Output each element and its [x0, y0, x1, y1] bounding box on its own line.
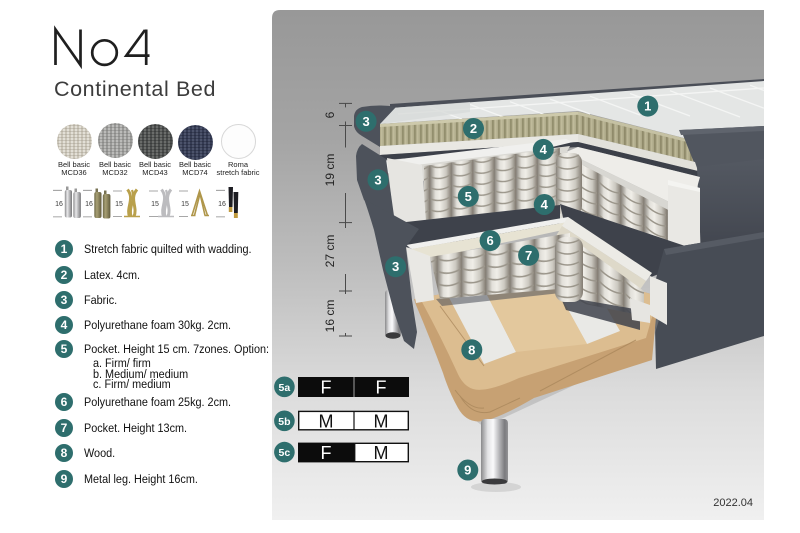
- svg-text:4: 4: [540, 142, 548, 157]
- svg-text:5c: 5c: [279, 447, 291, 459]
- svg-text:F: F: [376, 378, 387, 398]
- svg-text:M: M: [319, 412, 334, 432]
- svg-text:M: M: [374, 443, 389, 463]
- svg-text:3: 3: [362, 114, 369, 129]
- svg-text:3: 3: [374, 172, 381, 187]
- svg-text:27 cm: 27 cm: [323, 235, 337, 268]
- svg-text:2: 2: [470, 121, 477, 136]
- svg-text:3: 3: [392, 259, 399, 274]
- svg-text:M: M: [374, 412, 389, 432]
- svg-text:5b: 5b: [278, 416, 290, 428]
- svg-text:2022.04: 2022.04: [713, 497, 753, 509]
- svg-text:6: 6: [323, 111, 337, 118]
- svg-text:1: 1: [644, 99, 651, 114]
- svg-text:9: 9: [464, 463, 471, 478]
- svg-text:16 cm: 16 cm: [323, 300, 337, 333]
- svg-text:5a: 5a: [279, 382, 291, 394]
- svg-text:F: F: [321, 443, 332, 463]
- svg-text:5: 5: [465, 189, 472, 204]
- svg-text:F: F: [321, 378, 332, 398]
- svg-text:6: 6: [486, 233, 493, 248]
- svg-text:4: 4: [541, 197, 549, 212]
- svg-text:8: 8: [468, 342, 475, 357]
- svg-text:19 cm: 19 cm: [323, 154, 337, 187]
- svg-text:7: 7: [525, 248, 532, 263]
